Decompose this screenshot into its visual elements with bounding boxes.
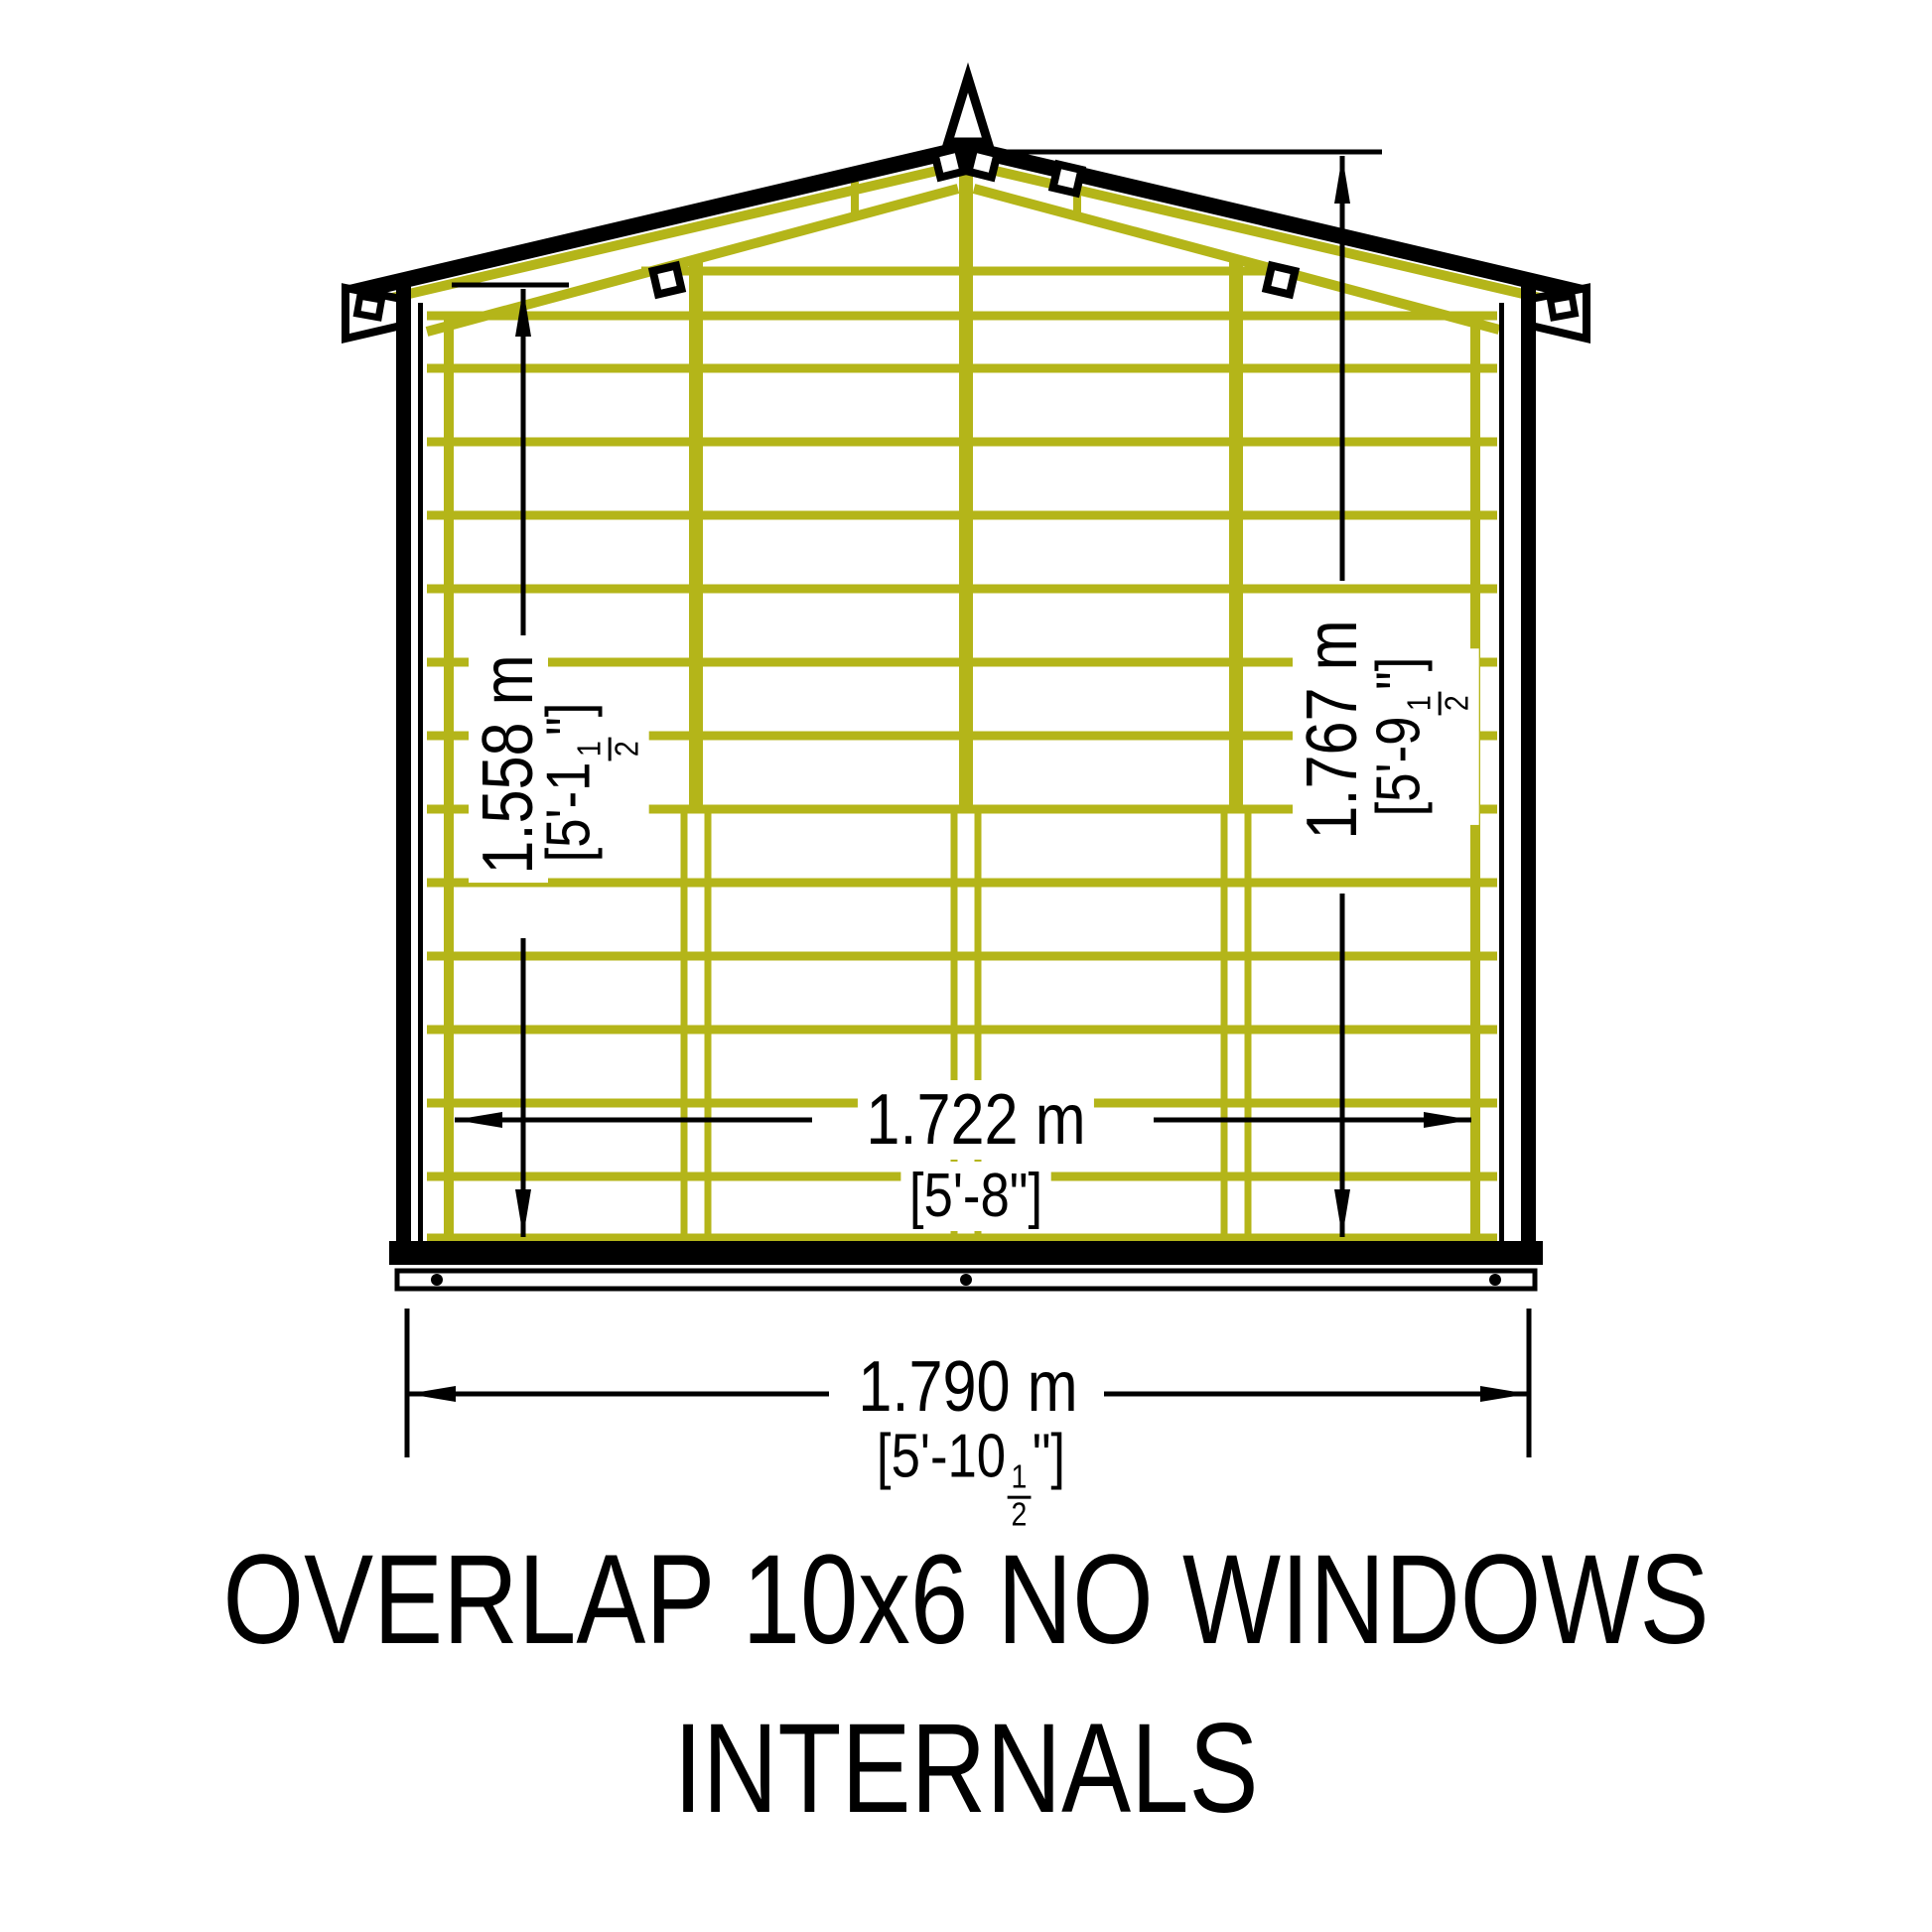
- fraction-one-half: 12: [1008, 1461, 1032, 1532]
- bearer-fixing-dot: [960, 1274, 972, 1286]
- fraction-one-half: 12: [1404, 691, 1474, 715]
- wall-right-outer: [1521, 280, 1536, 1253]
- arrowhead-down: [1334, 1189, 1350, 1237]
- roof-clip: [934, 148, 963, 177]
- arrowhead-left: [408, 1386, 456, 1402]
- arrowhead-right: [1480, 1386, 1528, 1402]
- bearer-fixing-dot: [431, 1274, 443, 1286]
- base-rail: [389, 1241, 1543, 1265]
- roof-clip: [1267, 266, 1296, 295]
- eave-bracket-hole: [357, 296, 382, 318]
- dimension-label-right-height-imperial: [5'-912"]: [1365, 648, 1479, 825]
- arrowhead-right: [1424, 1112, 1471, 1128]
- arrowhead-up: [1334, 156, 1350, 204]
- dimension-label-right-height-metric: 1.767 m: [1293, 612, 1372, 848]
- dimension-label-inner-width-imperial: [5'-8"]: [900, 1162, 1050, 1231]
- fraction-one-half: 12: [574, 737, 644, 760]
- eave-bracket-left: [345, 288, 401, 339]
- roof-clip: [968, 148, 997, 177]
- bearer-fixing-dot: [1489, 1274, 1501, 1286]
- dimension-label-outer-width-imperial: [5'-1012"]: [868, 1423, 1073, 1537]
- apex-finial: [948, 77, 988, 142]
- arrowhead-left: [455, 1112, 502, 1128]
- wall-left-outer: [396, 280, 411, 1253]
- eave-bracket-hole: [1551, 296, 1576, 318]
- eave-bracket-right: [1531, 288, 1587, 339]
- roof-clip: [653, 266, 682, 295]
- dimension-label-left-height-imperial: [5'-112"]: [535, 694, 649, 871]
- arrowhead-down: [515, 1189, 531, 1237]
- wall-left-inner: [418, 303, 423, 1253]
- wall-right-inner: [1499, 303, 1504, 1253]
- diagram-canvas: 1.558 m [5'-112"] 1.767 m [5'-912"] 1.72…: [0, 0, 1932, 1932]
- drawing-title-line1: OVERLAP 10x6 NO WINDOWS: [222, 1537, 1709, 1664]
- drawing-title-line2: INTERNALS: [673, 1706, 1258, 1833]
- roof-clip: [1053, 165, 1082, 194]
- dimension-label-inner-width-metric: 1.722 m: [858, 1080, 1094, 1160]
- dimension-label-outer-width-metric: 1.790 m: [850, 1347, 1086, 1427]
